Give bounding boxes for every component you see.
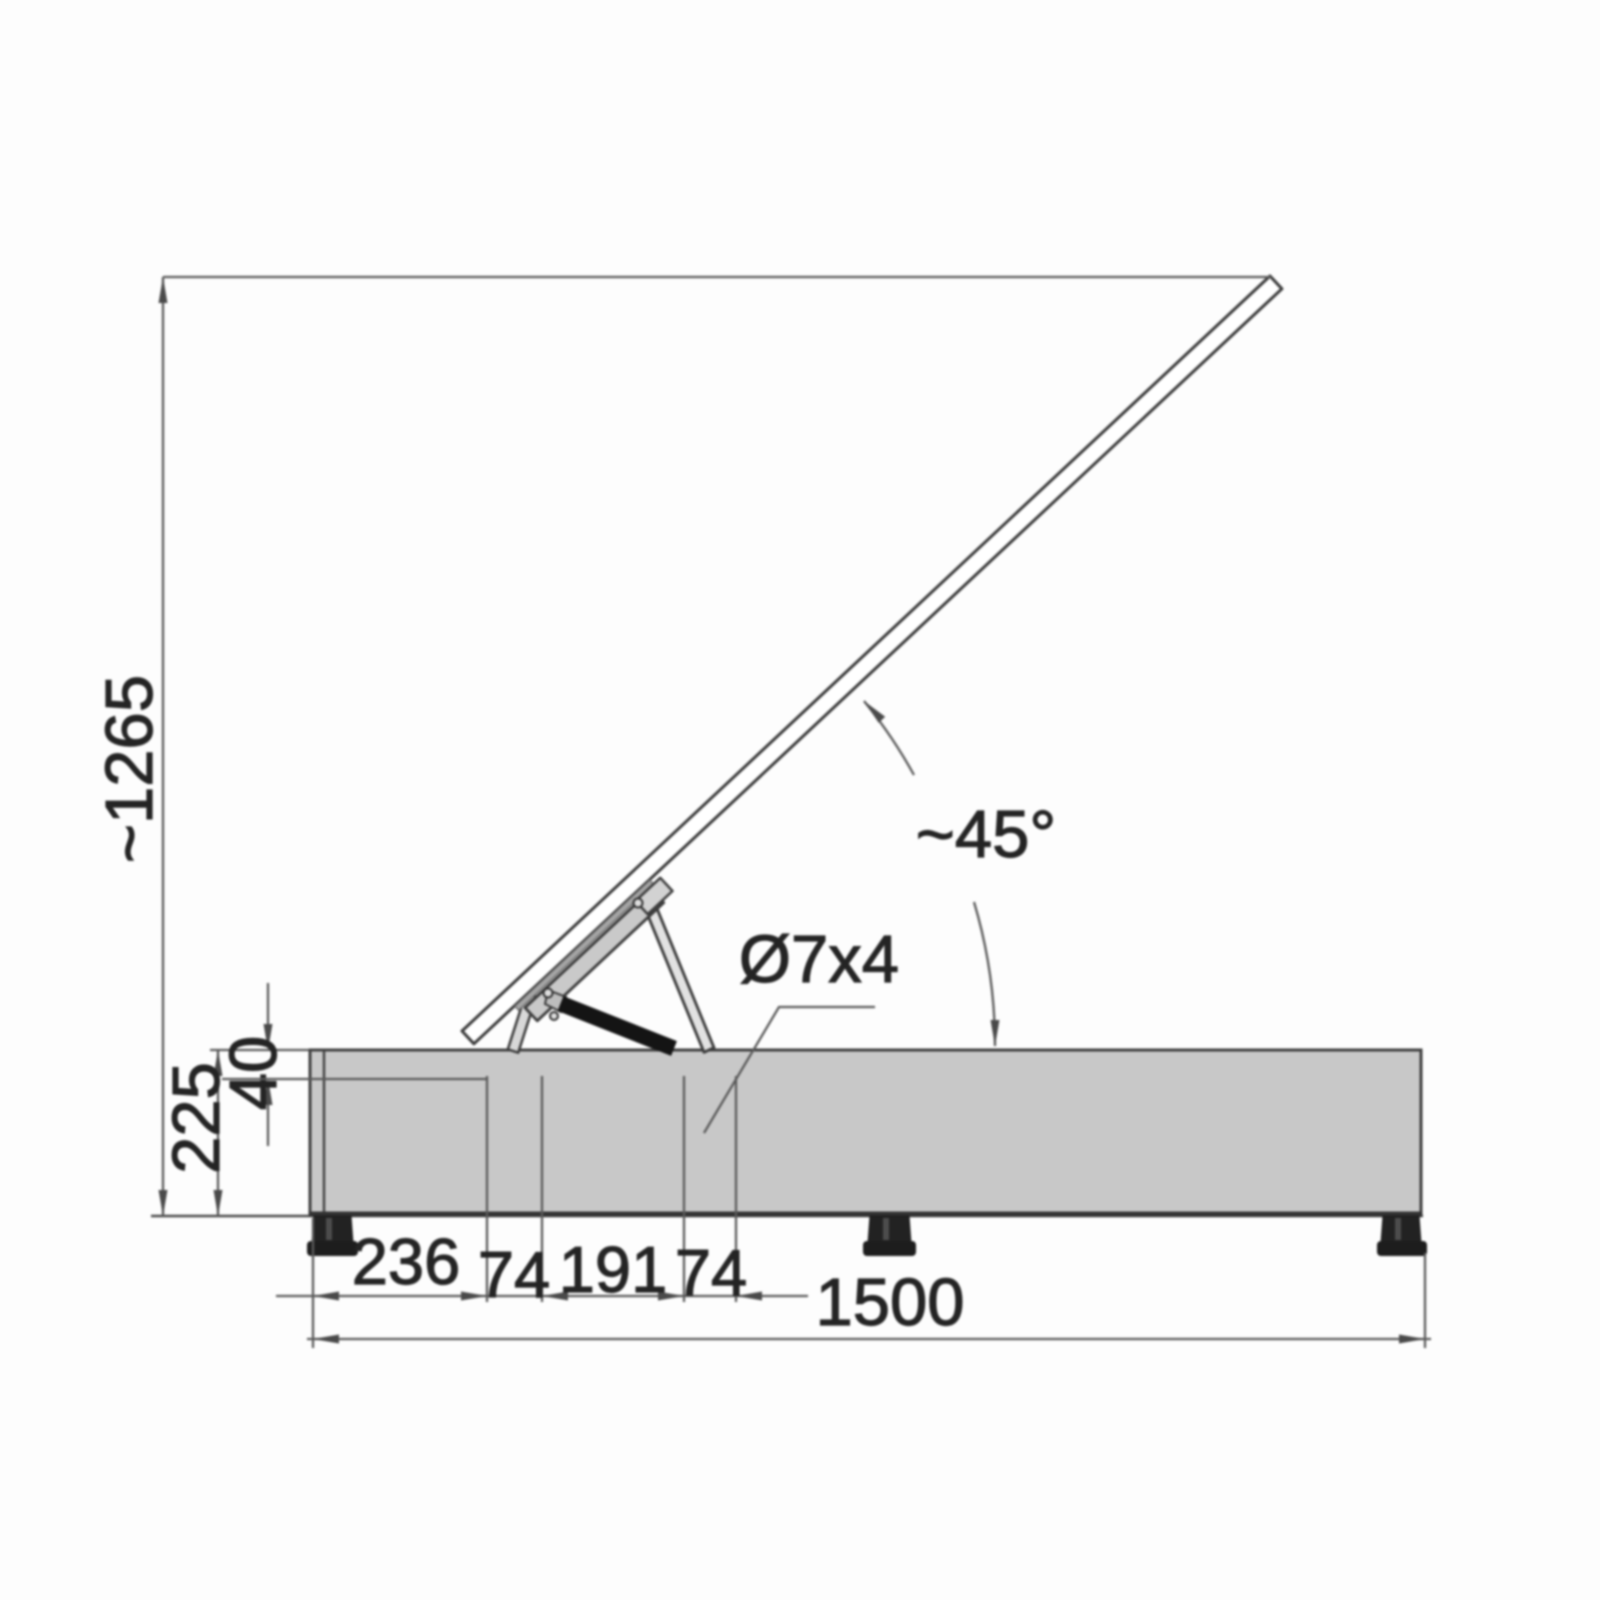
svg-text:236: 236 <box>352 1225 460 1298</box>
svg-text:Ø7x4: Ø7x4 <box>739 922 899 997</box>
svg-text:~45°: ~45° <box>916 797 1056 872</box>
svg-text:191: 191 <box>559 1233 667 1306</box>
svg-text:74: 74 <box>478 1238 550 1311</box>
svg-text:1500: 1500 <box>815 1265 964 1340</box>
svg-text:~1265: ~1265 <box>92 675 167 863</box>
svg-text:74: 74 <box>675 1236 747 1309</box>
svg-text:40: 40 <box>216 1036 291 1111</box>
